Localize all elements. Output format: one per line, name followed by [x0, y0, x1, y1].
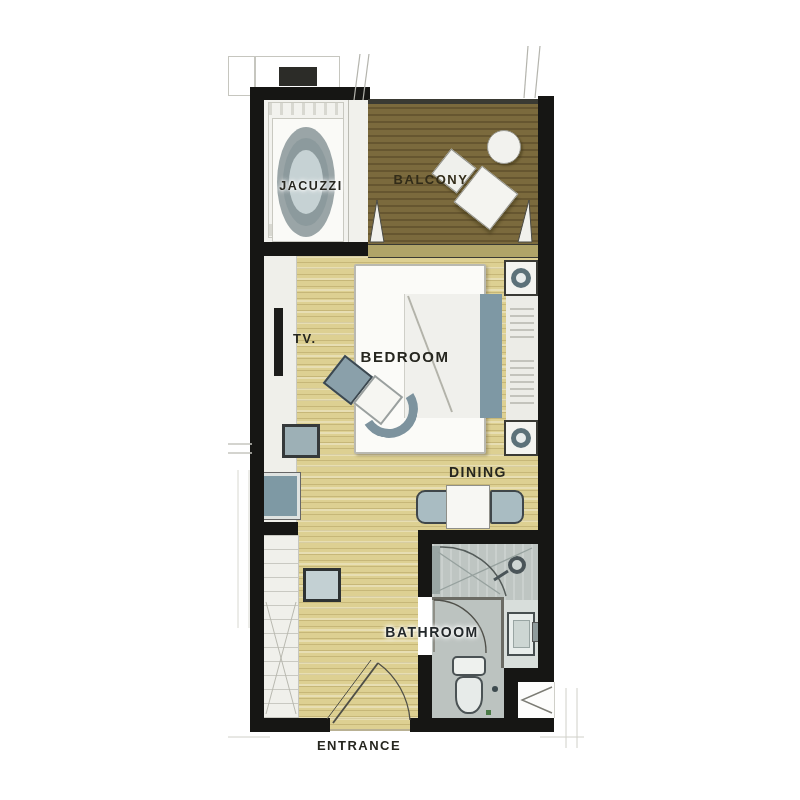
balcony-door-swing-right: [518, 200, 532, 242]
tv-label: TV.: [293, 331, 327, 346]
shower-glass-line-1: [436, 548, 532, 592]
entrance-door-arc: [378, 663, 410, 720]
ghost-line-mid-2: [363, 54, 369, 100]
shower-glass-line-2: [438, 552, 500, 594]
ghost-line-right-1: [524, 46, 528, 98]
jacuzzi-label: JACUZZI: [271, 179, 351, 193]
plan-lines-layer: [0, 0, 800, 800]
ghost-line-mid-1: [354, 54, 360, 100]
dining-label: DINING: [440, 464, 516, 480]
bottom-crop-band: [0, 751, 800, 800]
notch-door-icon: [522, 687, 552, 713]
balcony-door-swing-left: [370, 200, 384, 242]
ghost-line-right-2: [535, 46, 540, 98]
balcony-label: BALCONY: [386, 172, 476, 187]
entrance-door-leaf: [333, 663, 378, 723]
floorplan: JACUZZI BALCONY TV. BEDROOM DINING BATHR…: [0, 0, 800, 800]
shower-door-arc: [440, 547, 506, 596]
bedroom-label: BEDROOM: [348, 348, 462, 365]
bathroom-label: BATHROOM: [382, 624, 482, 640]
entrance-door-leaf-2: [327, 660, 371, 719]
floorplan-canvas: JACUZZI BALCONY TV. BEDROOM DINING BATHR…: [0, 0, 800, 800]
